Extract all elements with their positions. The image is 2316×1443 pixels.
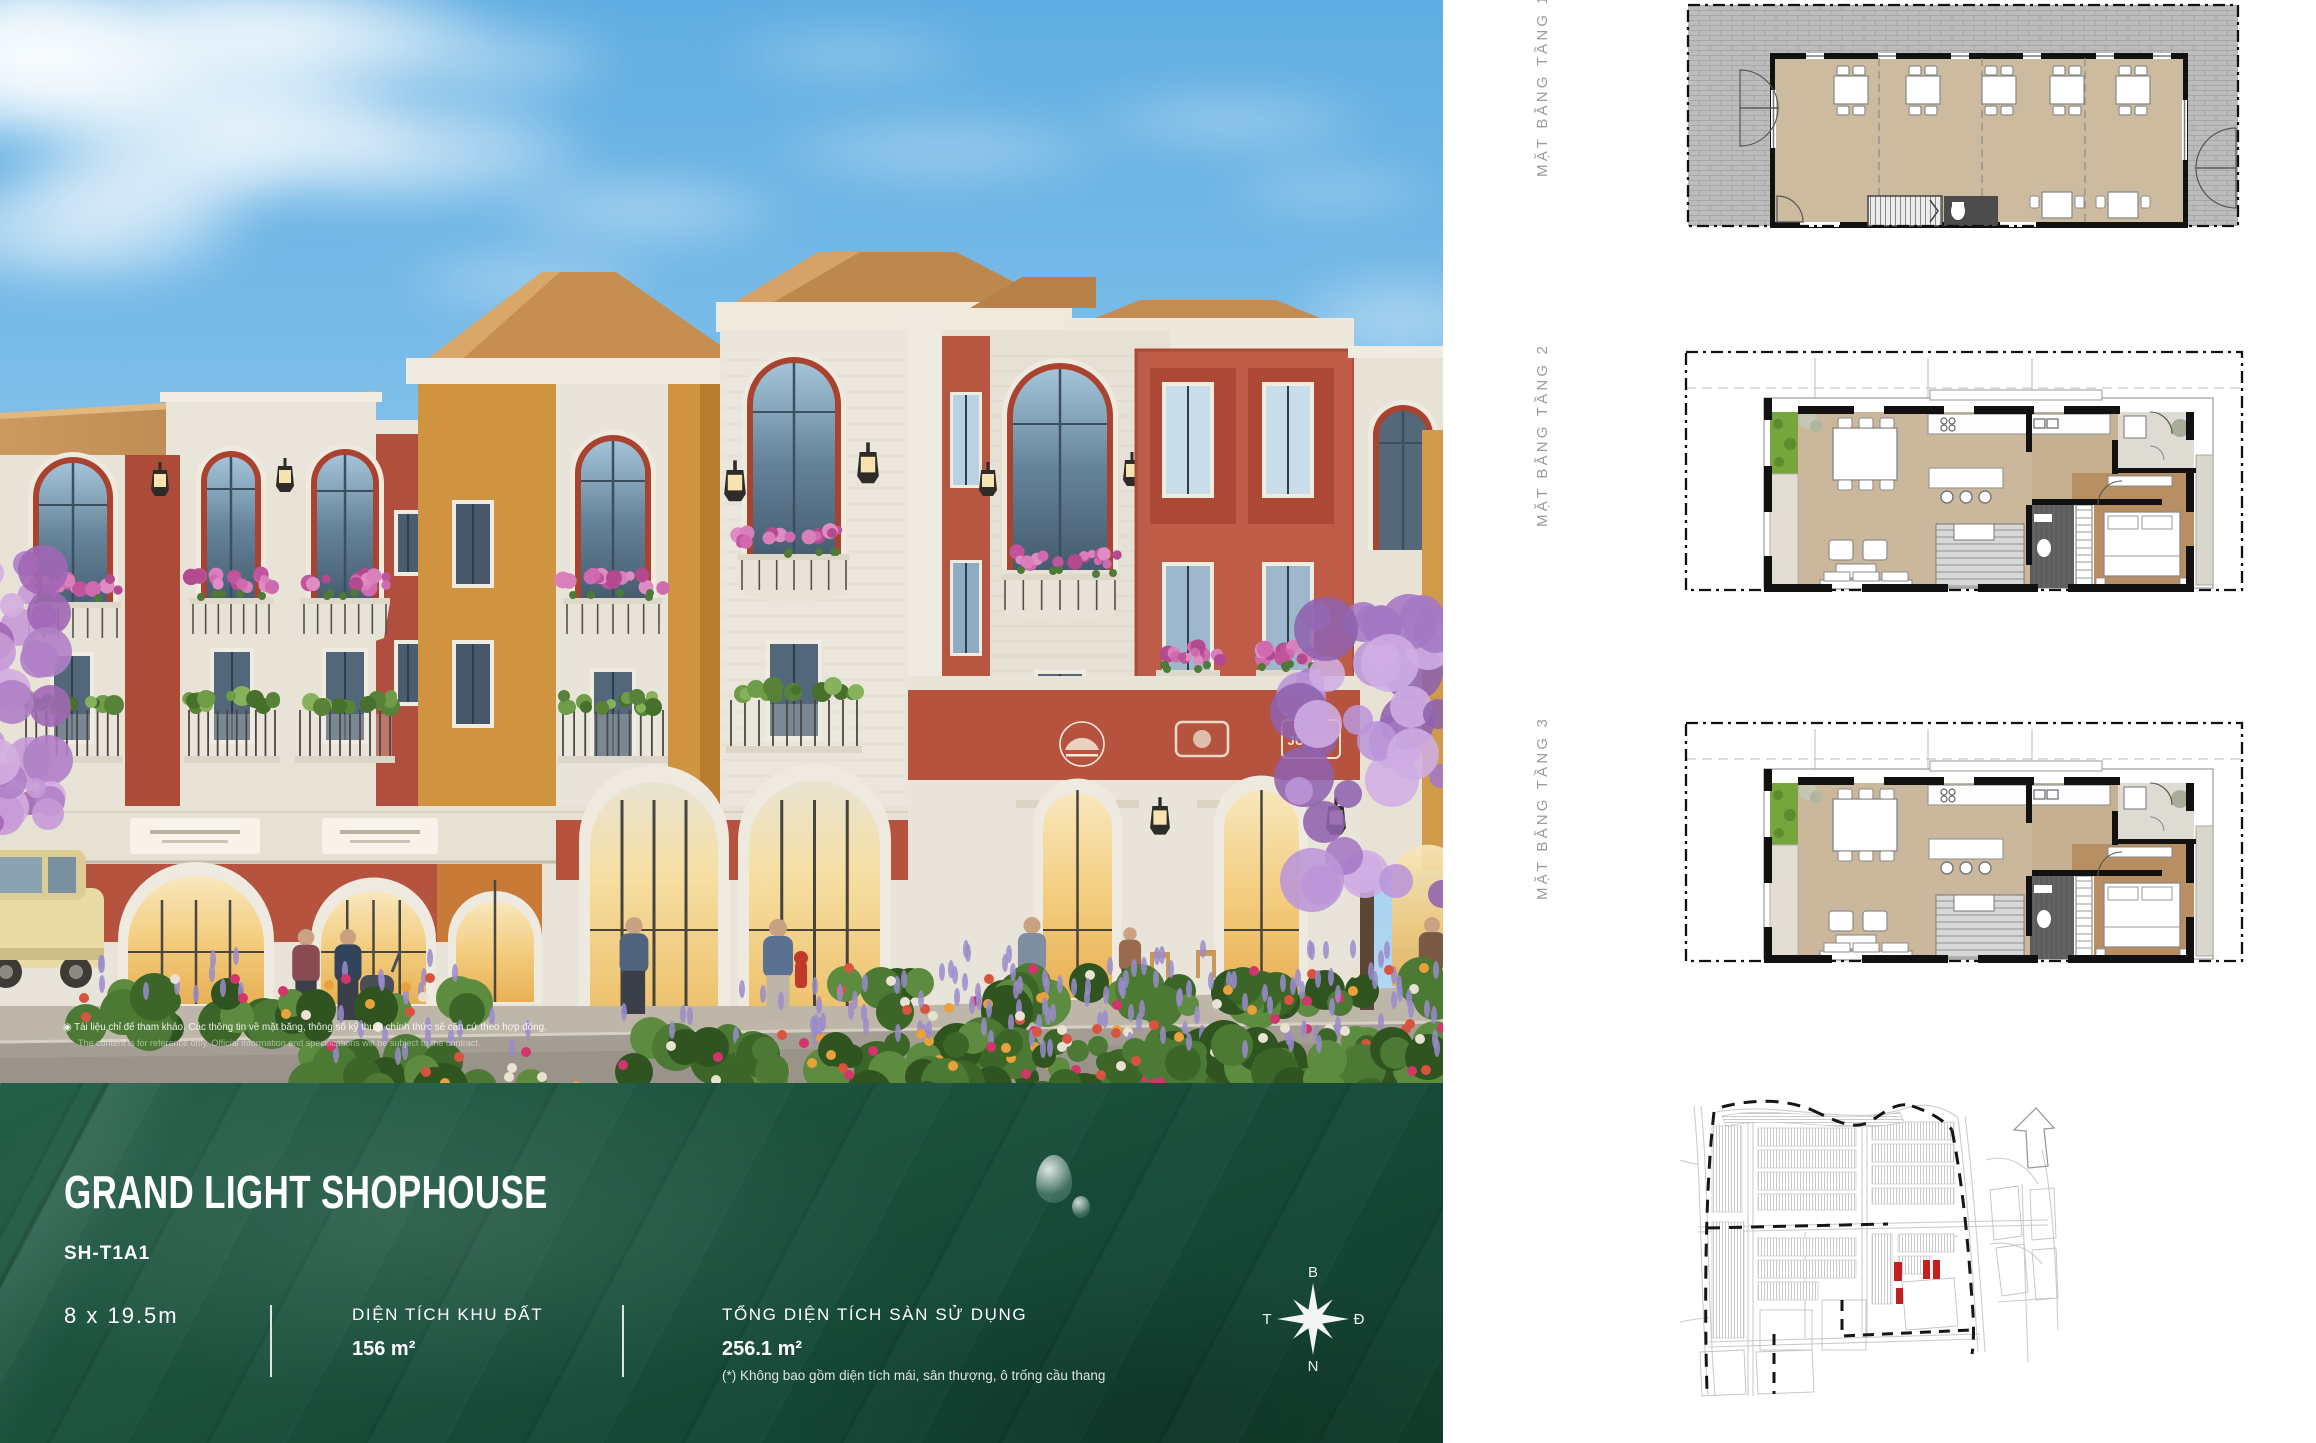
svg-text:N: N (1308, 1358, 1319, 1375)
svg-text:B: B (1308, 1264, 1318, 1281)
svg-text:Đ: Đ (1354, 1311, 1365, 1328)
svg-text:T: T (1262, 1311, 1271, 1328)
svg-text:◉ Tài liệu chỉ để tham khảo. C: ◉ Tài liệu chỉ để tham khảo. Các thông t… (63, 1022, 547, 1033)
svg-text:The content is for reference o: The content is for reference only. Offic… (78, 1038, 480, 1048)
